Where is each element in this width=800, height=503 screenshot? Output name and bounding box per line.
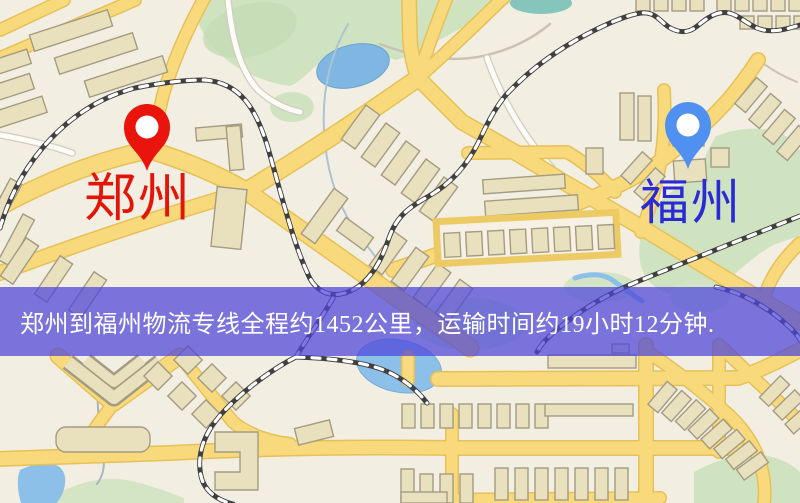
destination-pin-hole	[677, 114, 700, 137]
origin-city-label: 郑州	[84, 174, 192, 226]
destination-city-label: 福州	[640, 178, 742, 227]
route-info-banner: 郑州到福州物流专线全程约1452公里，运输时间约19小时12分钟.	[0, 287, 800, 356]
origin-pin-hole	[136, 116, 159, 139]
map-canvas: 郑州 福州 郑州到福州物流专线全程约1452公里，运输时间约19小时12分钟.	[0, 0, 800, 503]
map-graphics	[0, 0, 800, 503]
route-info-text: 郑州到福州物流专线全程约1452公里，运输时间约19小时12分钟.	[20, 304, 715, 339]
